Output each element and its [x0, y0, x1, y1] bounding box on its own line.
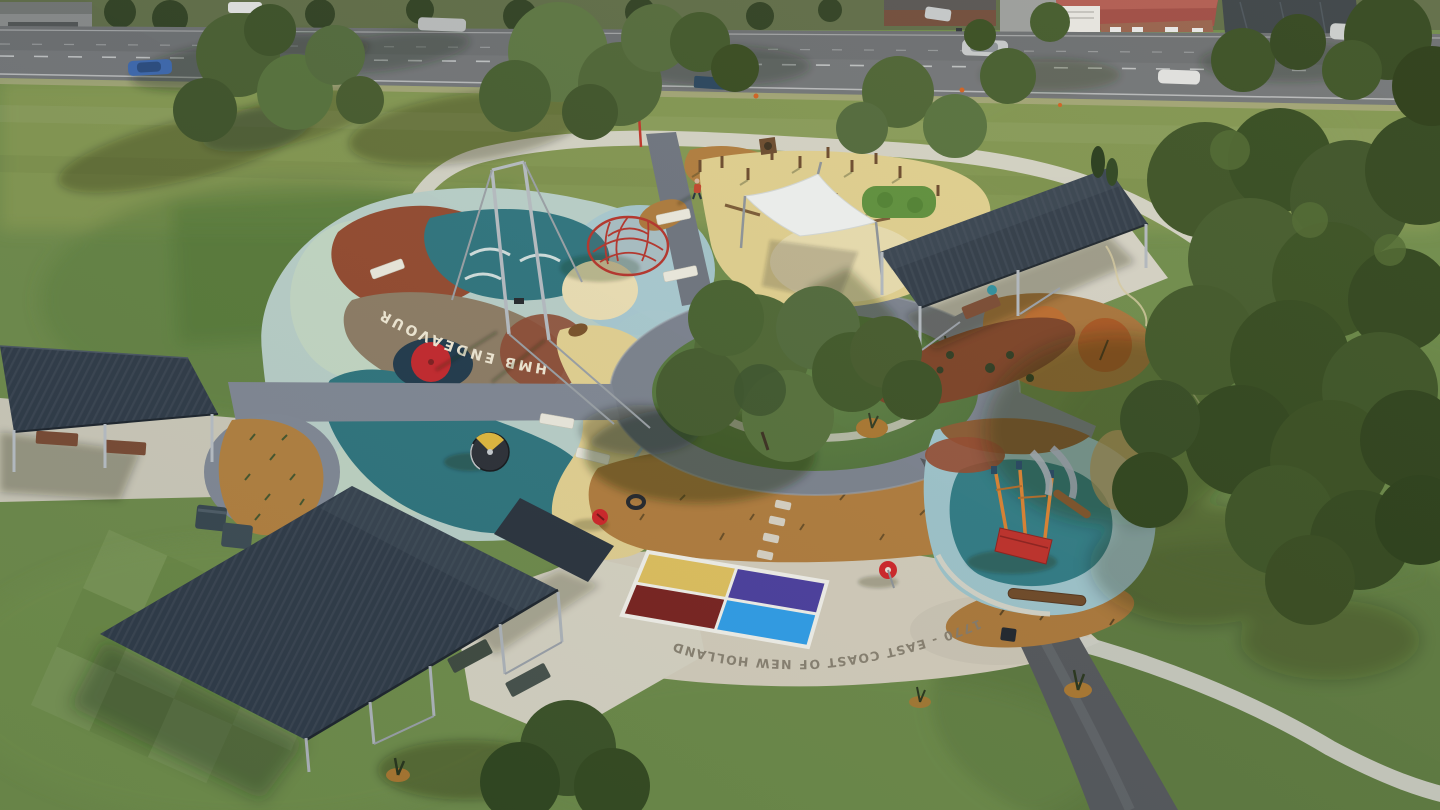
color-grade	[0, 0, 1440, 810]
scene-canvas: 1770 - EAST COAST OF NEW HOLLAND HMB END…	[0, 0, 1440, 810]
aerial-park-photo: 1770 - EAST COAST OF NEW HOLLAND HMB END…	[0, 0, 1440, 810]
